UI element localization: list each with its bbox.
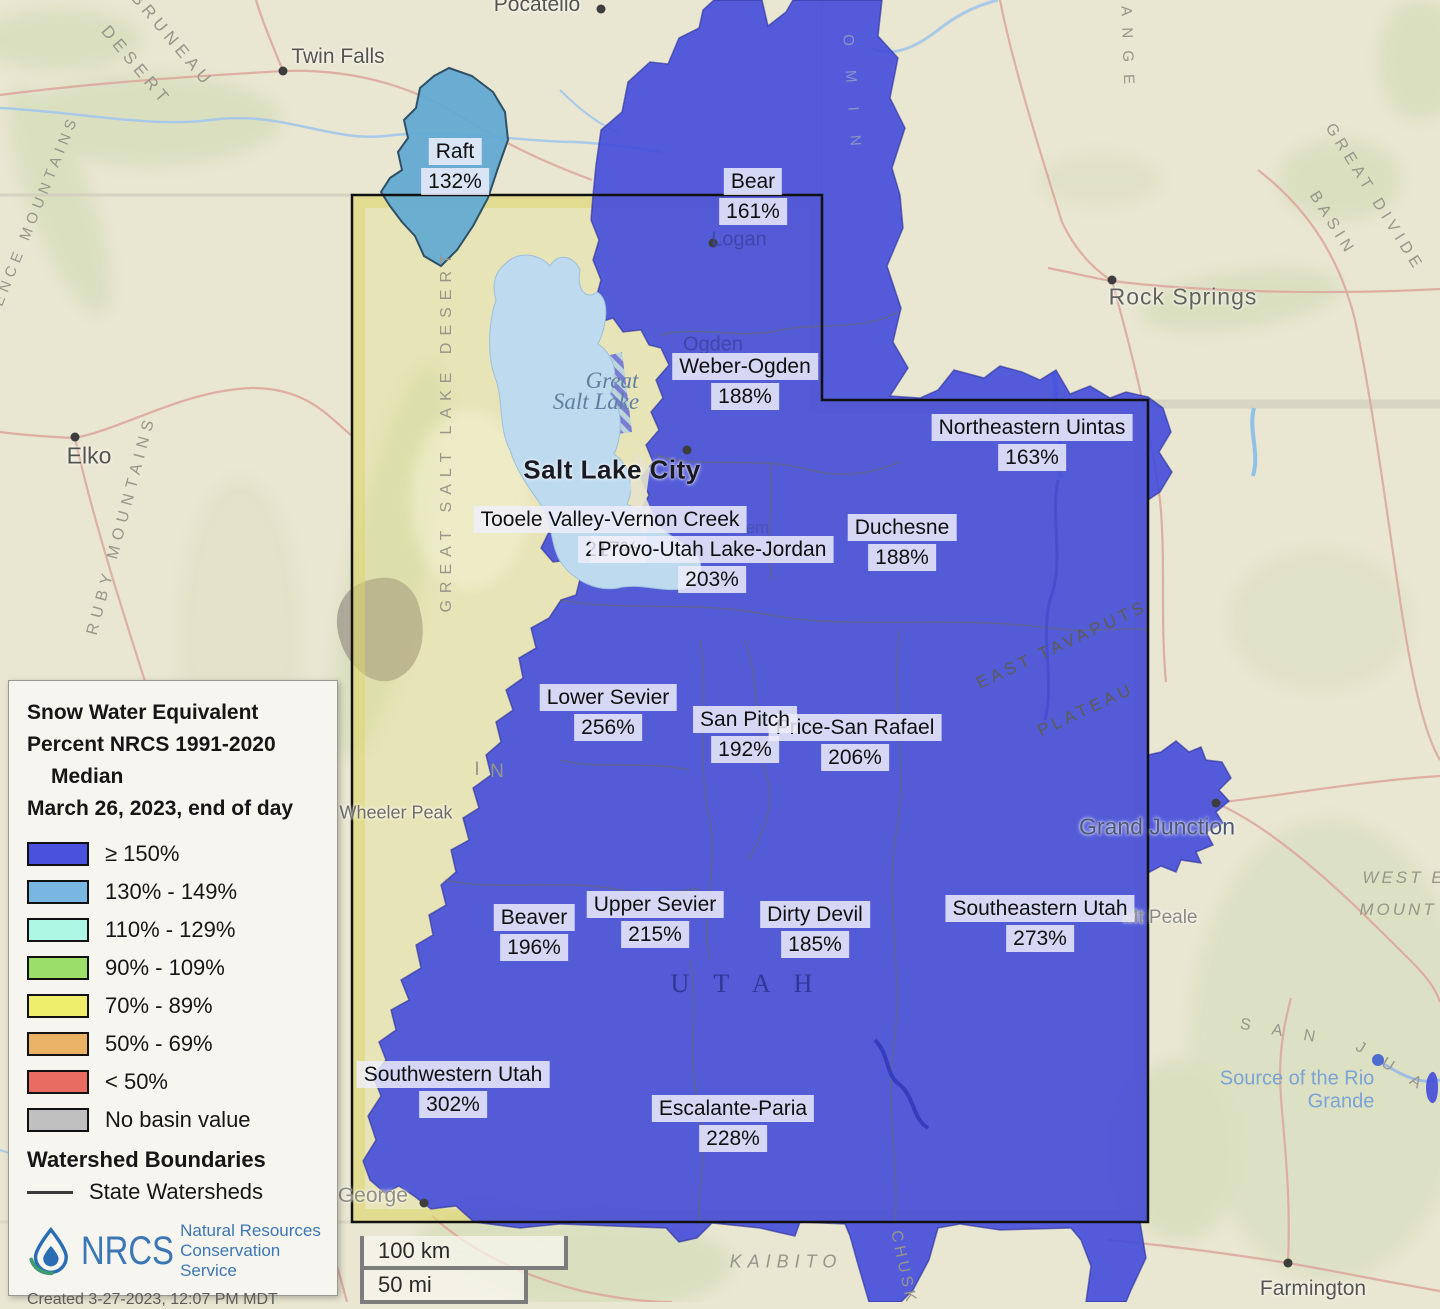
watershed-value-raft: 132% (421, 168, 489, 195)
watershed-label-bear: Bear (724, 168, 782, 195)
watershed-label-provo-utah-lake-jordan: Provo-Utah Lake-Jordan (591, 536, 834, 563)
watershed-label-weber-ogden: Weber-Ogden (672, 353, 818, 380)
terrain-label-i: I (474, 759, 479, 781)
watershed-value-weber-ogden: 188% (711, 383, 779, 410)
legend-item-2: 110% - 129% (27, 911, 323, 949)
watershed-label-san-pitch: San Pitch (693, 706, 797, 733)
city-dot-salt-lake-city (683, 446, 692, 455)
watershed-value-southwestern-utah: 302% (419, 1091, 487, 1118)
city-label-rock-springs: Rock Springs (1109, 284, 1258, 311)
terrain-label-west-e: WEST E (1362, 868, 1440, 888)
legend-swatch-2 (27, 918, 89, 942)
watershed-label-escalante-paria: Escalante-Paria (652, 1095, 814, 1122)
terrain-label-u-t-a-h: U T A H (671, 969, 822, 999)
city-dot-pocatello (597, 5, 606, 14)
terrain-label-great-salt-lake-desert: GREAT SALT LAKE DESERT (438, 247, 456, 612)
watershed-value-upper-sevier: 215% (621, 921, 689, 948)
nrcs-logo: NRCS Natural Resources Conservation Serv… (27, 1221, 323, 1281)
city-dot-saint-george (420, 1199, 429, 1208)
watershed-label-beaver: Beaver (494, 904, 575, 931)
scale-mi: 50 mi (360, 1270, 528, 1304)
watershed-value-duchesne: 188% (868, 544, 936, 571)
terrain-label-n: N (490, 761, 504, 783)
legend-items: ≥ 150%130% - 149%110% - 129%90% - 109%70… (27, 835, 323, 1139)
terrain-label-mount: MOUNT (1359, 900, 1436, 920)
legend-title: Snow Water Equivalent Percent NRCS 1991-… (27, 697, 323, 825)
nrcs-drop-icon (27, 1224, 75, 1278)
legend-swatch-7 (27, 1108, 89, 1132)
city-label-pocatello: Pocatello (494, 0, 580, 17)
watershed-label-duchesne: Duchesne (848, 514, 957, 541)
legend-label-1: 130% - 149% (105, 879, 237, 905)
legend-label-2: 110% - 129% (105, 917, 235, 943)
legend-item-3: 90% - 109% (27, 949, 323, 987)
city-dot-grand-junction (1212, 799, 1221, 808)
legend-swatch-5 (27, 1032, 89, 1056)
legend-label-3: 90% - 109% (105, 955, 225, 981)
state-watersheds-line-icon (27, 1191, 73, 1194)
legend-panel: Snow Water Equivalent Percent NRCS 1991-… (8, 680, 338, 1296)
terrain-label-kaibito: KAIBITO (730, 1252, 843, 1273)
city-label-salt-lake-city: Salt Lake City (523, 455, 701, 486)
nrcs-subtitle-line2: Conservation Service (180, 1241, 280, 1280)
legend-label-5: 50% - 69% (105, 1031, 213, 1057)
nrcs-subtitle-line1: Natural Resources (180, 1221, 321, 1240)
legend-label-0: ≥ 150% (105, 841, 179, 867)
watershed-value-san-pitch: 192% (711, 736, 779, 763)
legend-label-6: < 50% (105, 1069, 168, 1095)
legend-title-line3: Median (27, 761, 323, 793)
city-dot-farmington (1284, 1259, 1293, 1268)
watershed-label-upper-sevier: Upper Sevier (587, 891, 724, 918)
watershed-label-lower-sevier: Lower Sevier (540, 684, 677, 711)
watershed-label-tooele-valley-vernon-creek: Tooele Valley-Vernon Creek (474, 506, 747, 533)
watershed-value-escalante-paria: 228% (699, 1125, 767, 1152)
watershed-value-beaver: 196% (500, 934, 568, 961)
water-label-salt-lake: Salt Lake (553, 389, 639, 415)
legend-item-0: ≥ 150% (27, 835, 323, 873)
legend-item-4: 70% - 89% (27, 987, 323, 1025)
city-label-twin-falls: Twin Falls (291, 45, 384, 69)
terrain-label-r-a-n-g-e: R A N G E (1117, 0, 1138, 88)
legend-swatch-0 (27, 842, 89, 866)
legend-label-7: No basin value (105, 1107, 251, 1133)
watershed-value-price-san-rafael: 206% (821, 744, 889, 771)
map-screenshot: { "legend": { "title_line1": "Snow Water… (0, 0, 1440, 1302)
state-watersheds-label: State Watersheds (89, 1179, 263, 1205)
legend-title-line2: Percent NRCS 1991-2020 (27, 729, 323, 761)
nrcs-wordmark: NRCS (81, 1229, 174, 1274)
watershed-value-southeastern-utah: 273% (1006, 925, 1074, 952)
legend-item-7: No basin value (27, 1101, 323, 1139)
watershed-label-southeastern-utah: Southeastern Utah (945, 895, 1134, 922)
city-label-wheeler-peak: Wheeler Peak (339, 803, 452, 824)
watershed-value-northeastern-uintas: 163% (998, 444, 1066, 471)
legend-item-5: 50% - 69% (27, 1025, 323, 1063)
scale-km: 100 km (360, 1236, 568, 1270)
watershed-value-lower-sevier: 256% (574, 714, 642, 741)
legend-created: Created 3-27-2023, 12:07 PM MDT (27, 1291, 323, 1309)
water-label-source-of-the-rio: Source of the Rio (1220, 1068, 1375, 1091)
watershed-label-raft: Raft (429, 138, 482, 165)
watershed-boundaries-title: Watershed Boundaries (27, 1147, 323, 1173)
legend-swatch-6 (27, 1070, 89, 1094)
watershed-value-dirty-devil: 185% (781, 931, 849, 958)
legend-label-4: 70% - 89% (105, 993, 213, 1019)
water-label-grande: Grande (1308, 1091, 1375, 1114)
city-label-elko: Elko (67, 443, 112, 470)
legend-title-line1: Snow Water Equivalent (27, 697, 323, 729)
watershed-label-southwestern-utah: Southwestern Utah (357, 1061, 550, 1088)
legend-swatch-4 (27, 994, 89, 1018)
scale-bar: 100 km 50 mi (360, 1236, 568, 1304)
legend-swatch-3 (27, 956, 89, 980)
city-label-grand-junction: Grand Junction (1079, 814, 1235, 841)
city-label-logan: Logan (711, 229, 767, 252)
city-dot-twin-falls (279, 67, 288, 76)
city-dot-elko (71, 433, 80, 442)
watershed-value-provo-utah-lake-jordan: 203% (678, 566, 746, 593)
legend-item-1: 130% - 149% (27, 873, 323, 911)
watershed-label-dirty-devil: Dirty Devil (760, 901, 870, 928)
state-watersheds-item: State Watersheds (27, 1173, 323, 1211)
city-label-farmington: Farmington (1260, 1277, 1366, 1301)
legend-item-6: < 50% (27, 1063, 323, 1101)
legend-date: March 26, 2023, end of day (27, 793, 323, 825)
legend-swatch-1 (27, 880, 89, 904)
watershed-label-northeastern-uintas: Northeastern Uintas (932, 414, 1133, 441)
nrcs-subtitle: Natural Resources Conservation Service (180, 1221, 323, 1281)
watershed-value-bear: 161% (719, 198, 787, 225)
